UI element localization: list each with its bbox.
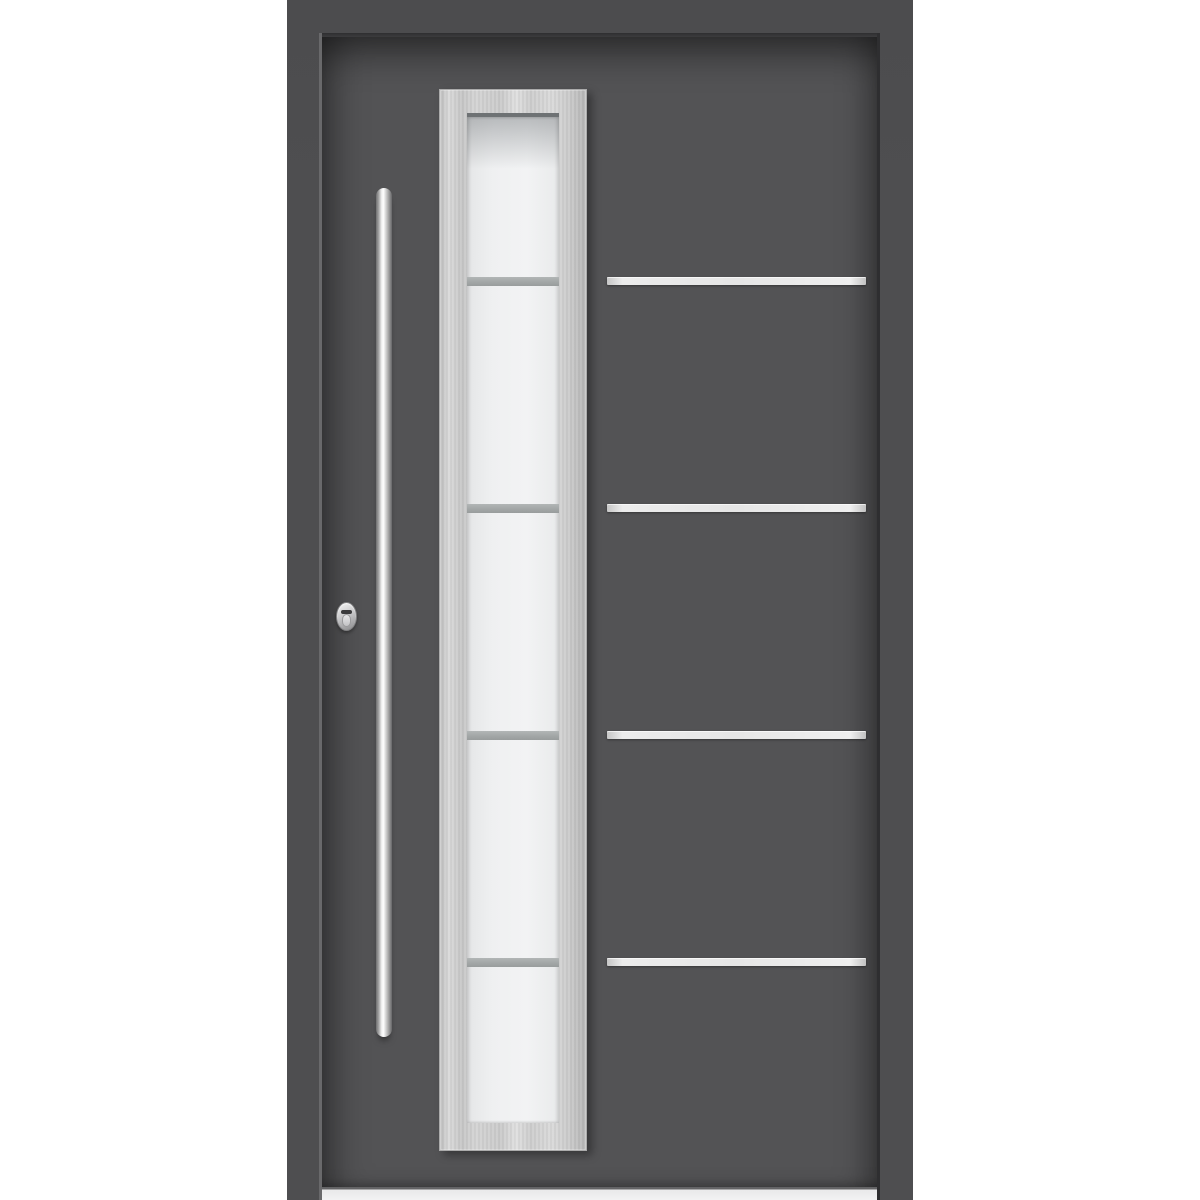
glass-divider: [467, 504, 559, 513]
steel-inlay-stripe: [607, 504, 866, 512]
frame-leaf-gap-right: [877, 33, 880, 1200]
glass-divider: [467, 958, 559, 967]
door-threshold: [322, 1187, 877, 1200]
steel-inlay-stripe: [607, 958, 866, 966]
cylinder-face-icon: [342, 614, 351, 627]
glass-divider: [467, 731, 559, 740]
product-photo-stage: [0, 0, 1200, 1200]
door-leaf: [322, 37, 877, 1187]
glass-panel: [467, 113, 559, 1123]
door-pull-handle-icon: [376, 188, 392, 1037]
glass-divider: [467, 277, 559, 286]
steel-inlay-stripe: [607, 277, 866, 285]
lock-cylinder-icon: [336, 602, 357, 631]
steel-inlay-stripe: [607, 731, 866, 739]
